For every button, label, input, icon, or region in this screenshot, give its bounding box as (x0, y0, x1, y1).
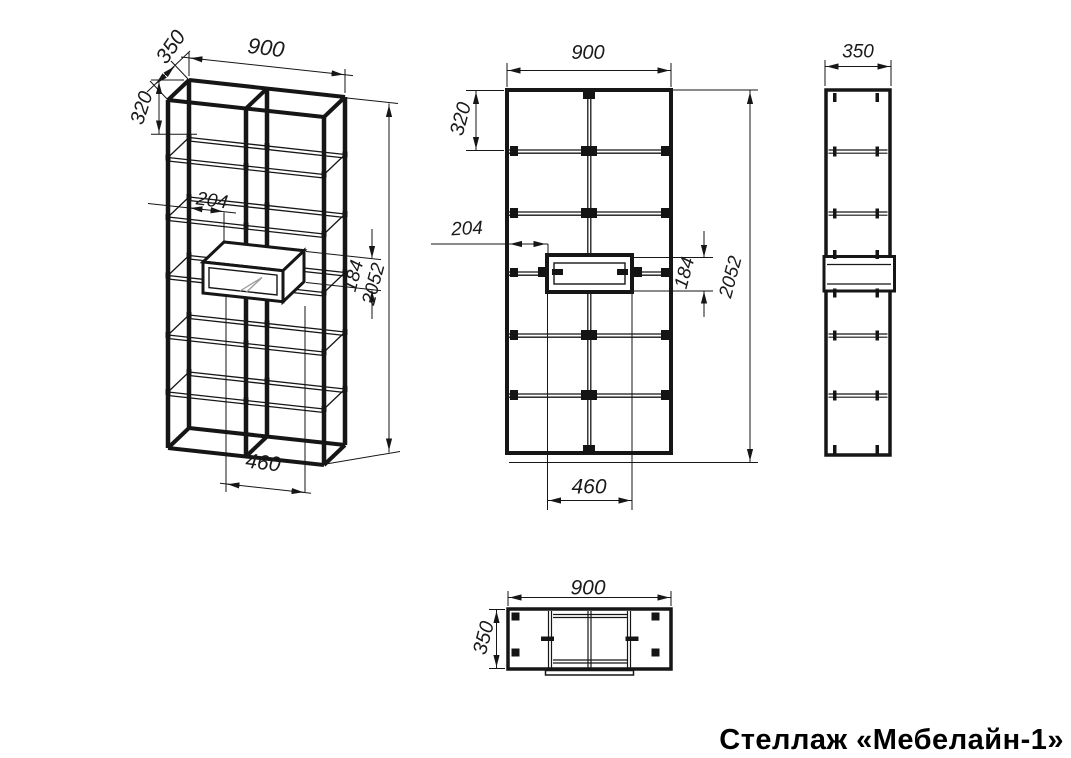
top-view (489, 591, 671, 675)
dim-front-niche-offset-label: 204 (451, 219, 484, 240)
technical-drawing (0, 0, 1071, 758)
side-niche-box (824, 257, 895, 292)
dim-iso-niche-width-label: 460 (244, 450, 281, 475)
iso-niche-box (203, 242, 304, 302)
dim-iso-niche-offset-label: 204 (195, 189, 229, 212)
side-view (824, 60, 895, 455)
dim-side-depth-label: 350 (842, 43, 874, 62)
product-title: Стеллаж «Мебелайн-1» (719, 724, 1064, 757)
dim-top-width-label: 900 (570, 578, 605, 599)
dim-front-niche-width-label: 460 (571, 477, 606, 498)
dim-front-width-label: 900 (571, 43, 604, 63)
dim-iso-width-label: 900 (246, 35, 285, 61)
front-view (431, 63, 758, 510)
drawing-sheet: 350 900 320 204 184 2052 460 900 320 204… (0, 0, 1071, 758)
